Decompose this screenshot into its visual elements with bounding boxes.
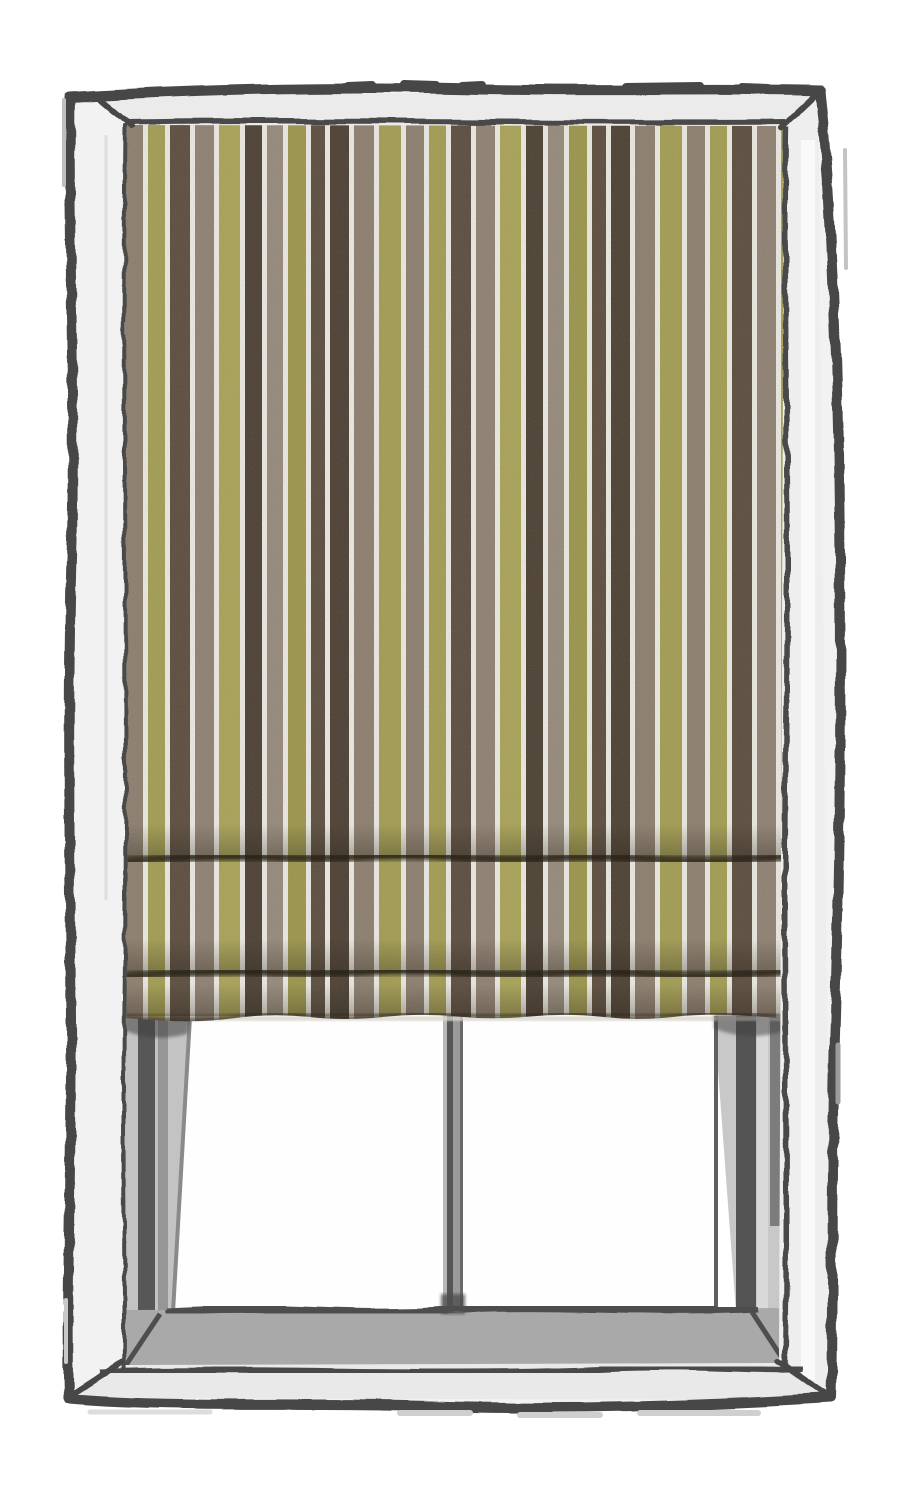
glass-pane-right	[460, 1016, 716, 1312]
inner-outline-left	[123, 124, 125, 1370]
jamb-left-streak-mid	[158, 1016, 168, 1312]
stray-mark	[845, 150, 846, 268]
pane-bottom-line	[168, 1307, 716, 1312]
roman-blind	[125, 122, 807, 1036]
blind-texture	[125, 122, 788, 1036]
mullion	[441, 1016, 465, 1314]
glass-pane-left	[170, 1016, 446, 1312]
ink-bump	[462, 85, 482, 86]
fabric-grain-light	[125, 122, 788, 1036]
ink-bump	[742, 87, 768, 88]
mullion-dark-edge	[447, 1016, 453, 1312]
inner-outline-right	[785, 126, 788, 1364]
ink-bump	[348, 85, 372, 86]
window-sill	[124, 1308, 788, 1368]
inner-outline-top	[127, 121, 785, 122]
ink-bump	[626, 86, 700, 87]
illustration-stage	[0, 0, 900, 1500]
mullion-right-edge	[460, 1016, 463, 1312]
jamb-left-streak-dark	[138, 1016, 155, 1312]
mullion-body	[453, 1016, 460, 1312]
sill-top-face	[124, 1308, 788, 1368]
mullion-highlight	[443, 1016, 447, 1312]
jamb-right-streak-dark	[736, 1016, 756, 1314]
ink-bump	[404, 84, 436, 85]
window-blind-illustration	[0, 0, 900, 1500]
jamb-right-highlight	[757, 1016, 768, 1312]
